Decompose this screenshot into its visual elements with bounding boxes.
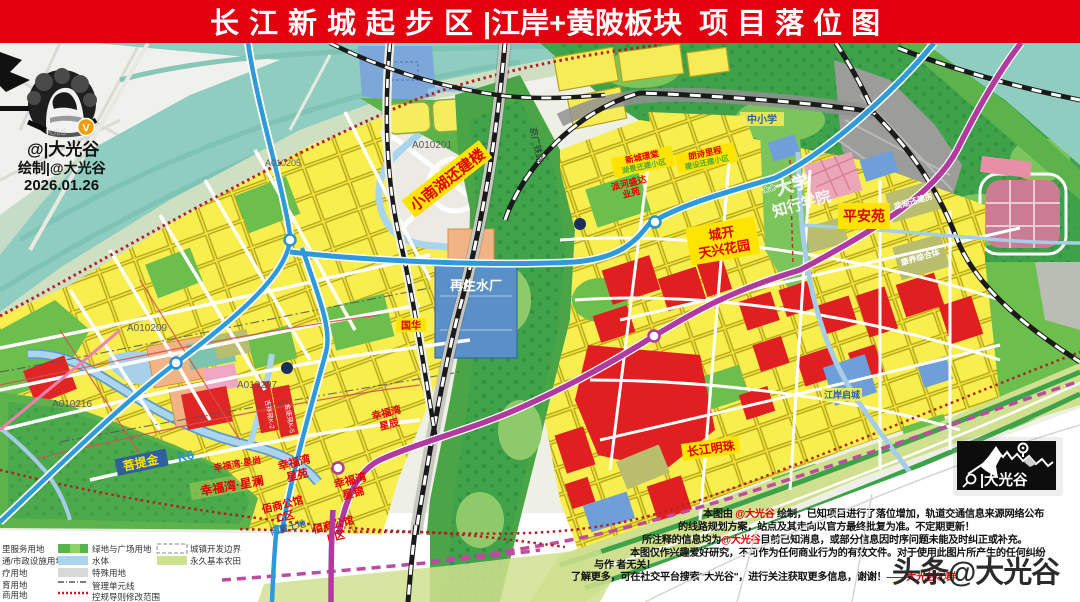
svg-text:2026.01.26: 2026.01.26	[24, 177, 99, 194]
svg-text:A010207: A010207	[237, 380, 277, 391]
svg-text:特殊用地: 特殊用地	[92, 568, 127, 578]
svg-text:中小学: 中小学	[747, 113, 777, 126]
svg-text:江岸启城: 江岸启城	[824, 389, 860, 400]
svg-text:再生水厂: 再生水厂	[450, 278, 502, 293]
svg-text:A010201: A010201	[412, 140, 452, 151]
svg-text:商用地: 商用地	[2, 590, 28, 600]
svg-text:管理单元线: 管理单元线	[92, 581, 135, 591]
svg-text:平安苑: 平安苑	[843, 208, 885, 224]
svg-text:绿地与广场用地: 绿地与广场用地	[92, 544, 152, 554]
svg-text:A010216: A010216	[52, 399, 92, 410]
svg-text:绘制|@大光谷: 绘制|@大光谷	[18, 160, 107, 176]
svg-text:水体: 水体	[92, 556, 110, 566]
svg-text:长江新城起步区|江岸+黄陂板块 项目落位图: 长江新城起步区|江岸+黄陂板块 项目落位图	[210, 6, 889, 40]
svg-text:的线路规划方案，站点及其走向以官方最终批复为准。不定期更新！: 的线路规划方案，站点及其走向以官方最终批复为准。不定期更新！	[678, 520, 975, 533]
svg-text:A010209: A010209	[127, 323, 167, 334]
svg-text:V: V	[82, 123, 90, 135]
svg-text:通/市政设施用地: 通/市政设施用地	[2, 556, 64, 566]
svg-text:永久基本农田: 永久基本农田	[190, 556, 241, 566]
svg-text:育用地: 育用地	[2, 580, 28, 590]
svg-text:与作 者无关！: 与作 者无关！	[594, 558, 656, 571]
svg-text:本图由 @大光谷 绘制，已知项目进行了落位增加，轨道交通信息: 本图由 @大光谷 绘制，已知项目进行了落位增加，轨道交通信息来源网络公布	[703, 507, 1044, 520]
svg-text:大光谷: 大光谷	[46, 127, 67, 136]
svg-text:|大光谷: |大光谷	[980, 471, 1028, 489]
svg-text:疗用地: 疗用地	[2, 568, 28, 578]
svg-text:控规导则修改范围: 控规导则修改范围	[92, 592, 160, 602]
svg-text:里服务用地: 里服务用地	[2, 544, 45, 554]
svg-text:所注释的信息均为@大光谷目前已知消息，或部分信息因时序问题未: 所注释的信息均为@大光谷目前已知消息，或部分信息因时序问题未能及时纠正或补充。	[642, 533, 1027, 546]
svg-text:A010205: A010205	[265, 158, 301, 168]
svg-text:城镇开发边界: 城镇开发边界	[190, 544, 242, 554]
svg-text:国华: 国华	[401, 319, 421, 332]
svg-text:@|大光谷: @|大光谷	[27, 139, 100, 159]
svg-text:头条@大光谷: 头条@大光谷	[892, 556, 1061, 589]
